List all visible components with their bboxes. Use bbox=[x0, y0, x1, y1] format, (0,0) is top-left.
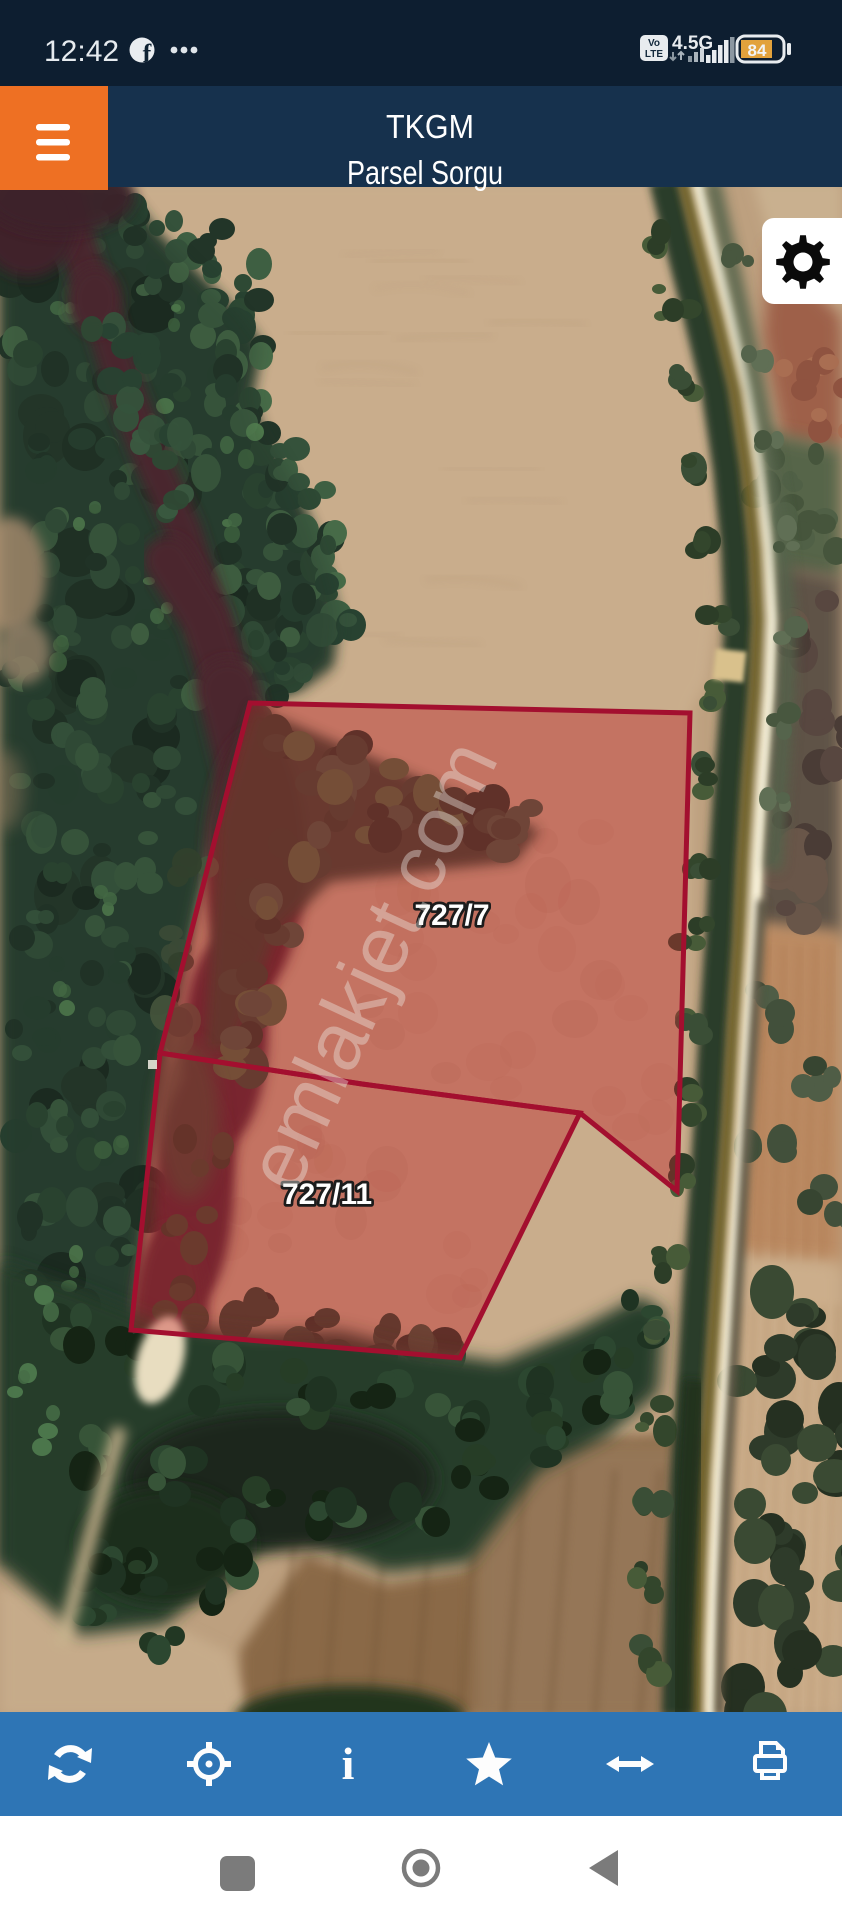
svg-text:TKGM: TKGM bbox=[386, 108, 474, 145]
svg-text:84: 84 bbox=[748, 41, 767, 60]
svg-text:f: f bbox=[143, 39, 152, 68]
svg-text:12:42: 12:42 bbox=[44, 35, 119, 68]
svg-text:LTE: LTE bbox=[645, 49, 663, 60]
svg-text:Vo: Vo bbox=[648, 38, 660, 49]
svg-text:Parsel Sorgu: Parsel Sorgu bbox=[347, 154, 503, 191]
svg-text:i: i bbox=[342, 1738, 355, 1789]
svg-text:4.5G: 4.5G bbox=[672, 33, 713, 54]
